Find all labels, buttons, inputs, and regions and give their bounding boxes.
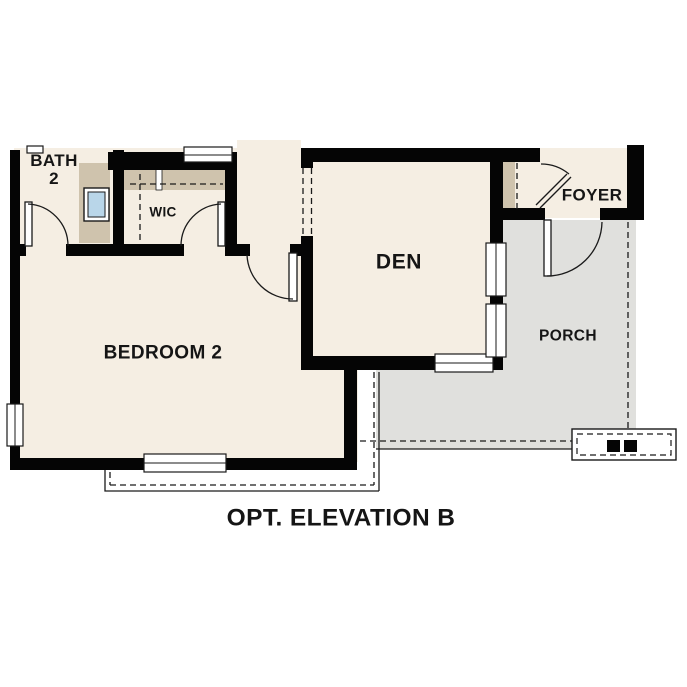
foyer-south-wall-left	[490, 208, 545, 220]
den-west-wall	[301, 236, 313, 368]
label-bath2: BATH2	[30, 152, 78, 188]
plan-caption: OPT. ELEVATION B	[227, 506, 456, 533]
wic-east-wall	[225, 162, 237, 244]
den-east-wall-upper	[490, 150, 503, 243]
west-wall-upper	[10, 150, 20, 405]
label-foyer: FOYER	[562, 187, 623, 206]
porch-column-detail	[572, 429, 676, 460]
den-west-wall-top-stub	[301, 148, 313, 168]
foyer-south-wall-right	[600, 208, 644, 220]
window-den-east-upper	[486, 243, 506, 296]
south-wall-right	[224, 458, 357, 470]
column-post-left	[607, 440, 620, 452]
bedroom-north-wall-a	[10, 244, 26, 256]
bedroom-east-wall	[344, 368, 357, 470]
label-bath2-line1: BATH	[30, 151, 78, 170]
den-south-wall	[301, 356, 437, 370]
bedroom-north-wall-c	[225, 244, 250, 256]
column-post-right	[624, 440, 637, 452]
label-porch: PORCH	[539, 327, 597, 344]
window-den-south	[435, 354, 493, 372]
den-south-wall-corner	[493, 356, 503, 370]
window-bedroom-west	[7, 404, 23, 446]
hall-floor-north	[237, 140, 301, 152]
label-den: DEN	[376, 250, 422, 273]
label-bath2-line2: 2	[49, 169, 59, 188]
window-den-east-lower	[486, 304, 506, 357]
label-bedroom2: BEDROOM 2	[104, 344, 223, 365]
bath-wic-divider-wall	[113, 150, 124, 245]
floorplan-page: BATH2 WIC DEN FOYER PORCH BEDROOM 2 OPT.…	[0, 0, 687, 687]
window-wic-north	[184, 147, 232, 162]
window-bedroom-south	[144, 454, 226, 472]
south-wall-left	[10, 458, 146, 470]
bath-sink-basin	[88, 192, 105, 217]
bedroom-north-wall-b	[66, 244, 184, 256]
den-foyer-north-wall	[301, 148, 540, 162]
elevation-slab-outline	[105, 470, 379, 491]
den-east-wall-mullion	[490, 296, 503, 304]
label-wic: WIC	[149, 206, 176, 221]
